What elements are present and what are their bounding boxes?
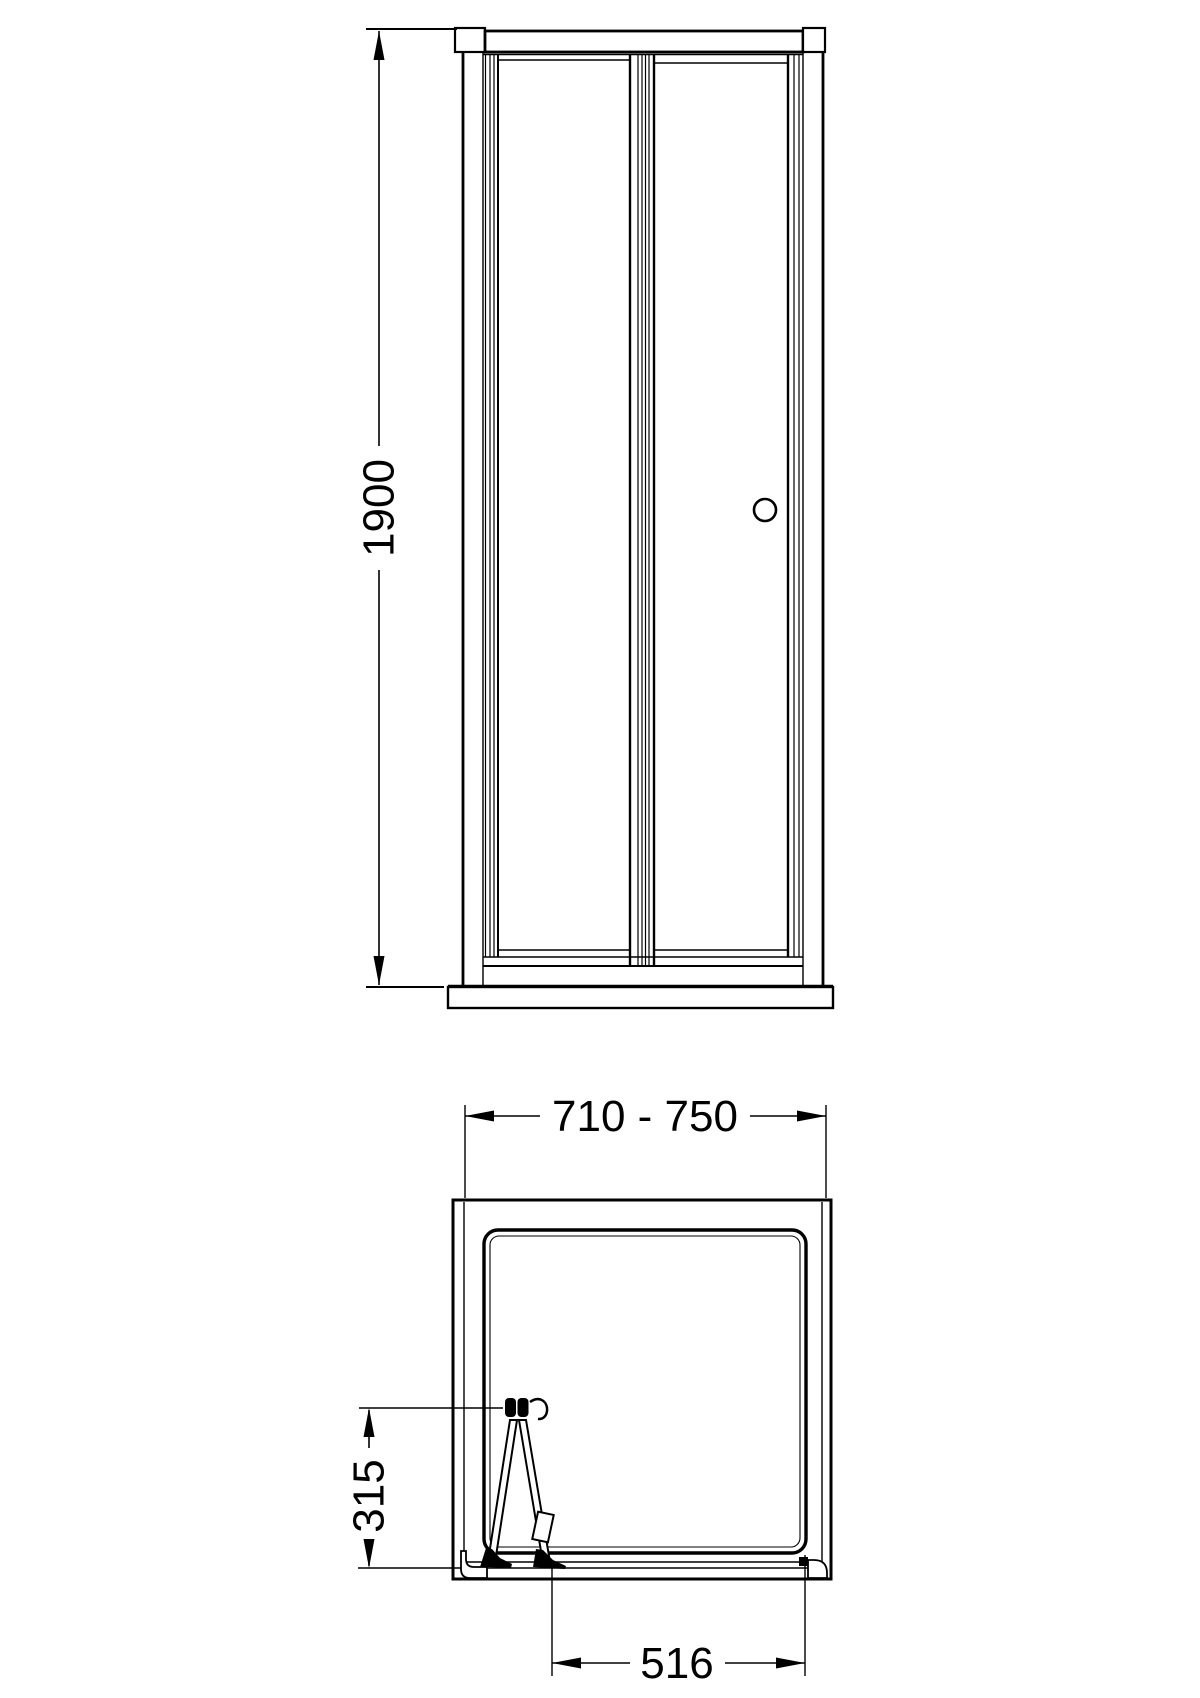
wall-profile-cap-right (803, 28, 825, 52)
wall-profile-cap-left (455, 28, 485, 52)
door-projection-dimension-label: 315 (345, 1459, 394, 1532)
pivot-hinge-left (505, 1398, 516, 1417)
shower-tray-elevation (448, 987, 833, 1008)
technical-drawing-canvas: 1900 (0, 0, 1200, 1698)
height-dimension-label: 1900 (355, 459, 404, 557)
head-rail (485, 31, 803, 52)
pivot-hinge-right (518, 1398, 529, 1417)
clear-opening-dimension-label: 516 (640, 1639, 713, 1688)
drawing-sheet: 1900 (0, 0, 1200, 1698)
guide-block (799, 1557, 808, 1566)
sheet-background (0, 0, 1200, 1698)
door-seal-right (808, 1560, 827, 1578)
overall-width-dimension-label: 710 - 750 (552, 1092, 738, 1141)
